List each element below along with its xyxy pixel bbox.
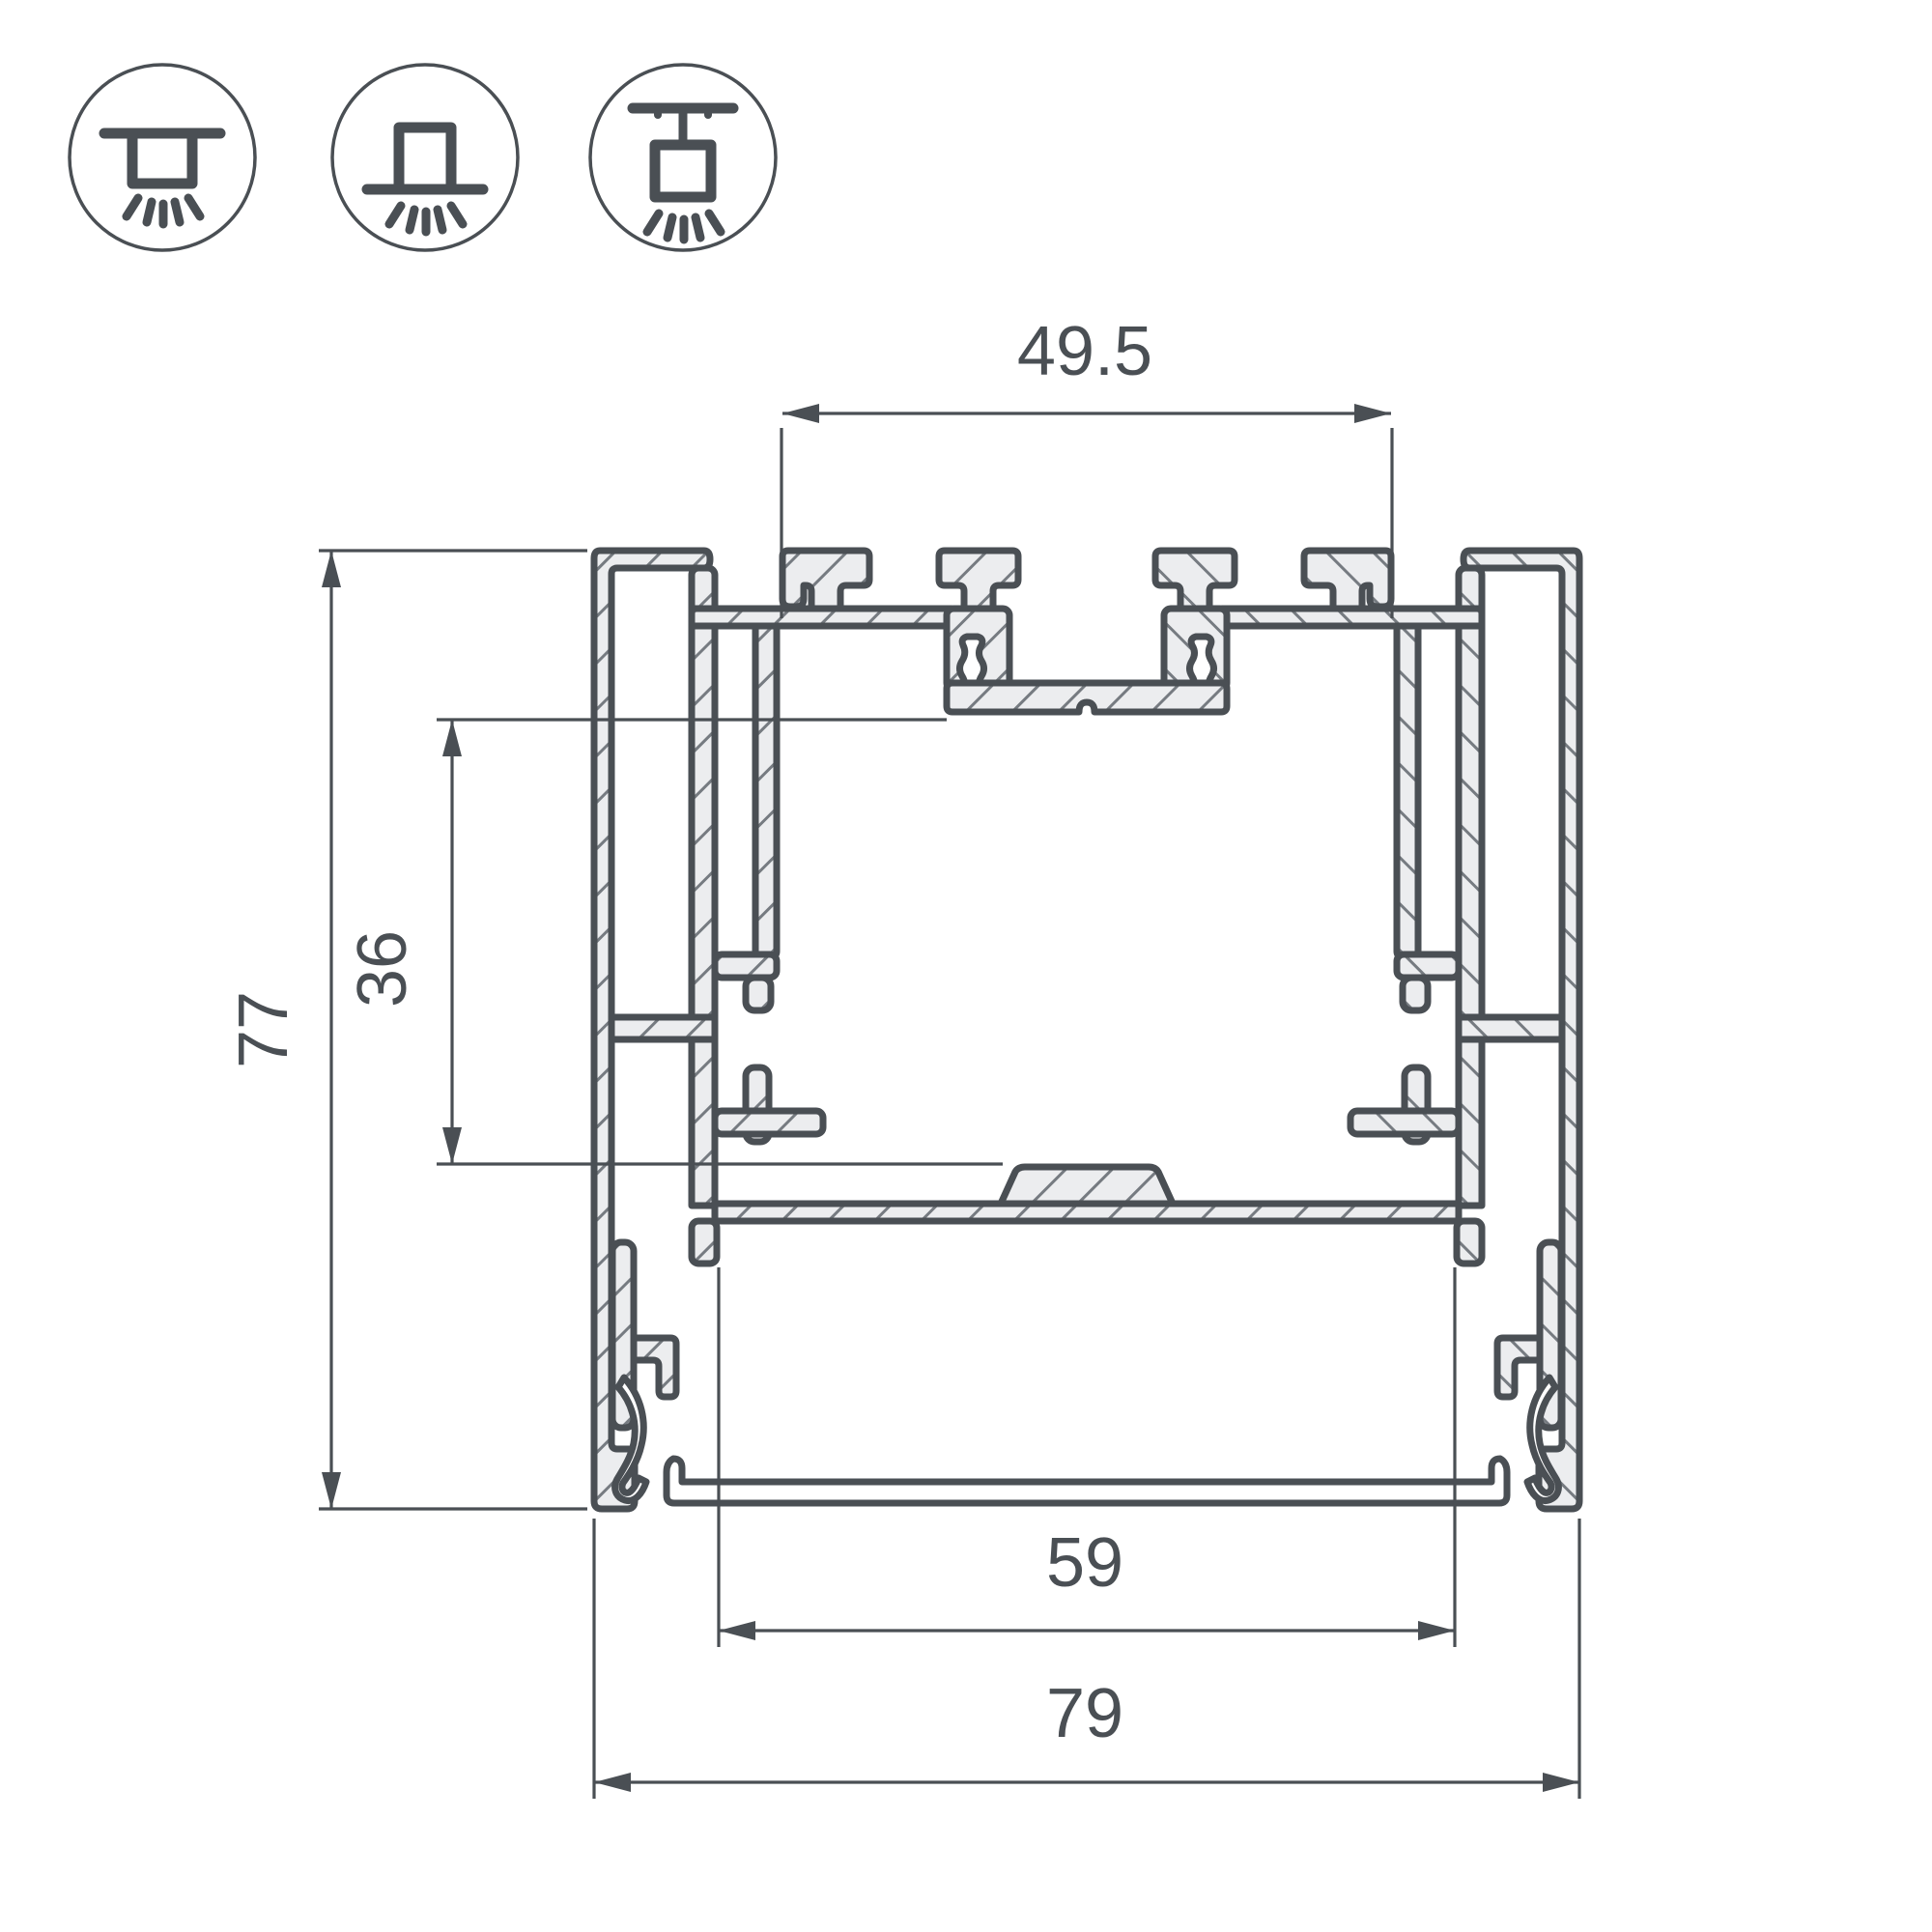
- arrowhead: [1354, 404, 1391, 423]
- arrowhead: [1418, 1621, 1455, 1640]
- light-rays: [127, 198, 200, 224]
- dimensions: 49.5 77 36 59: [225, 313, 1579, 1799]
- diffuser-hook: [634, 1338, 676, 1397]
- t-slot-tab-outer: [782, 551, 869, 609]
- diffuser-plate: [667, 1459, 1507, 1503]
- light-rays: [389, 206, 463, 232]
- lower-stem: [692, 1039, 715, 1206]
- arrowhead: [322, 551, 341, 587]
- screw-channel-bridge: [715, 954, 777, 978]
- arrowhead: [442, 1127, 462, 1164]
- screw-channel-hook: [746, 978, 771, 1010]
- dim-top-width: 49.5: [781, 313, 1392, 618]
- arrowhead: [442, 720, 462, 756]
- screw-channel-wall: [755, 609, 777, 958]
- fixture-box: [655, 145, 711, 197]
- dim-top-width-label: 49.5: [1017, 313, 1152, 390]
- dim-opening-width-label: 59: [1046, 1524, 1123, 1602]
- arrowhead: [719, 1621, 755, 1640]
- fixture-box: [399, 128, 451, 189]
- dim-overall-width-label: 79: [1046, 1675, 1123, 1752]
- pendant-mount-icon: [590, 65, 776, 250]
- mount-icons: [70, 65, 776, 250]
- profile-cross-section: [594, 551, 1579, 1509]
- cross-clip-horizontal: [715, 1111, 823, 1134]
- dim-overall-height: 77: [225, 551, 587, 1509]
- screw-boss-bottom-plate: [947, 683, 1227, 712]
- shelf-center-bump: [1001, 1167, 1173, 1204]
- light-rays: [647, 213, 721, 240]
- dim-overall-height-label: 77: [225, 991, 302, 1068]
- profile-drawing-svg: 49.5 77 36 59: [0, 0, 1932, 1932]
- cavity-lip: [692, 1221, 717, 1264]
- surface-mount-icon: [332, 65, 518, 250]
- recessed-mount-icon: [70, 65, 255, 250]
- arrowhead: [594, 1773, 631, 1792]
- t-slot-tab-inner: [939, 551, 1018, 609]
- technical-drawing-page: 49.5 77 36 59: [0, 0, 1932, 1932]
- arrowhead: [1543, 1773, 1579, 1792]
- fixture-box: [132, 133, 192, 184]
- dim-inner-height-label: 36: [344, 930, 421, 1008]
- dim-inner-height: 36: [344, 720, 1003, 1164]
- inner-web: [692, 568, 715, 1039]
- dim-opening-width: 59: [719, 1267, 1455, 1647]
- arrowhead: [782, 404, 819, 423]
- arrowhead: [322, 1472, 341, 1509]
